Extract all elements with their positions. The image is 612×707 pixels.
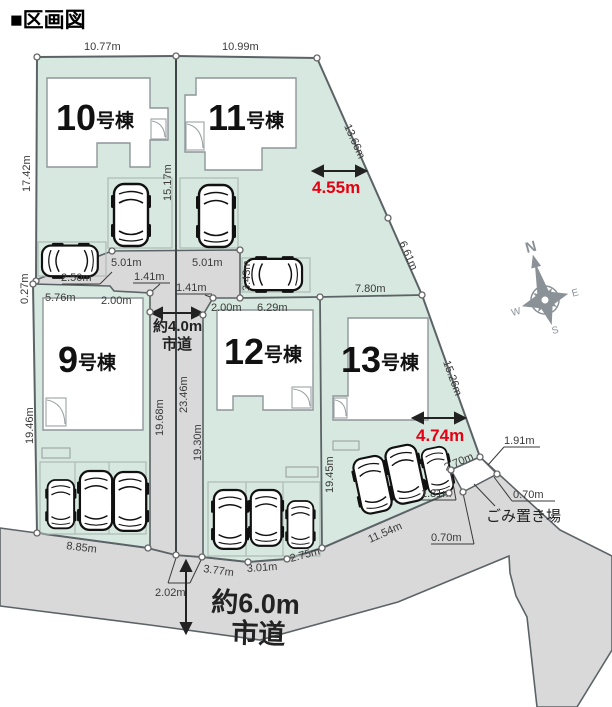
dim-lot9-top: 5.76m	[45, 292, 76, 304]
dim-left-lot9: 19.46m	[24, 407, 36, 444]
divider-lot12-top	[240, 297, 320, 298]
dim-gb-topright: 1.91m	[504, 435, 535, 447]
dim-left-lot10: 17.42m	[21, 155, 33, 192]
compass-rose: N E W S	[494, 230, 588, 346]
road-6m-label-line1: 約6.0m	[211, 586, 301, 620]
dim-gb-bottom: 0.70m	[431, 532, 462, 544]
dim-head-left-w: 5.01m	[111, 257, 142, 269]
dim-jog-left: 0.27m	[19, 273, 31, 304]
compass-e: E	[571, 287, 581, 299]
dim-head-right-w: 5.01m	[192, 257, 223, 269]
dim-red-top: 4.55m	[312, 178, 360, 197]
dim-lot12-top-step: 2.00m	[211, 302, 242, 314]
dim-bay-left: 2.50m	[61, 272, 92, 284]
dim-mid-divider: 15.17m	[162, 164, 174, 201]
dim-road-right: 19.30m	[192, 424, 204, 461]
dim-lot13-left: 19.45m	[324, 456, 336, 493]
dim-road-left: 19.68m	[154, 399, 166, 436]
dim-head-right-h: 3.43m	[241, 260, 253, 291]
dim-lot12-top: 6.29m	[257, 302, 288, 314]
dim-head-left-jog: 1.41m	[134, 271, 165, 283]
dim-road-bottom: 2.02m	[155, 587, 186, 599]
dim-lot13-top: 7.80m	[355, 283, 386, 295]
dim-lot9-top-step: 2.00m	[101, 295, 132, 307]
compass-w: W	[510, 306, 523, 319]
compass-s: S	[551, 325, 561, 337]
road-4m-label-line2: 市道	[162, 335, 192, 353]
dim-road-center: 23.46m	[178, 376, 190, 413]
dim-top-right: 10.99m	[222, 41, 259, 53]
compass-n: N	[523, 238, 538, 257]
page-title: ■区画図	[10, 9, 86, 32]
road-4m-label-line1: 約4.0m	[153, 317, 202, 335]
site-plan-page: ■区画図	[0, 0, 612, 707]
garbage-label: ごみ置き場	[486, 508, 561, 525]
site-plan-svg: ■区画図	[0, 0, 612, 707]
dim-gb-right: 0.70m	[513, 489, 544, 501]
road-6m-label-line2: 市道	[231, 617, 286, 650]
dim-top-left: 10.77m	[84, 41, 121, 53]
dim-red-bottom: 4.74m	[416, 426, 464, 445]
dim-head-right-jog: 1.41m	[176, 282, 207, 294]
